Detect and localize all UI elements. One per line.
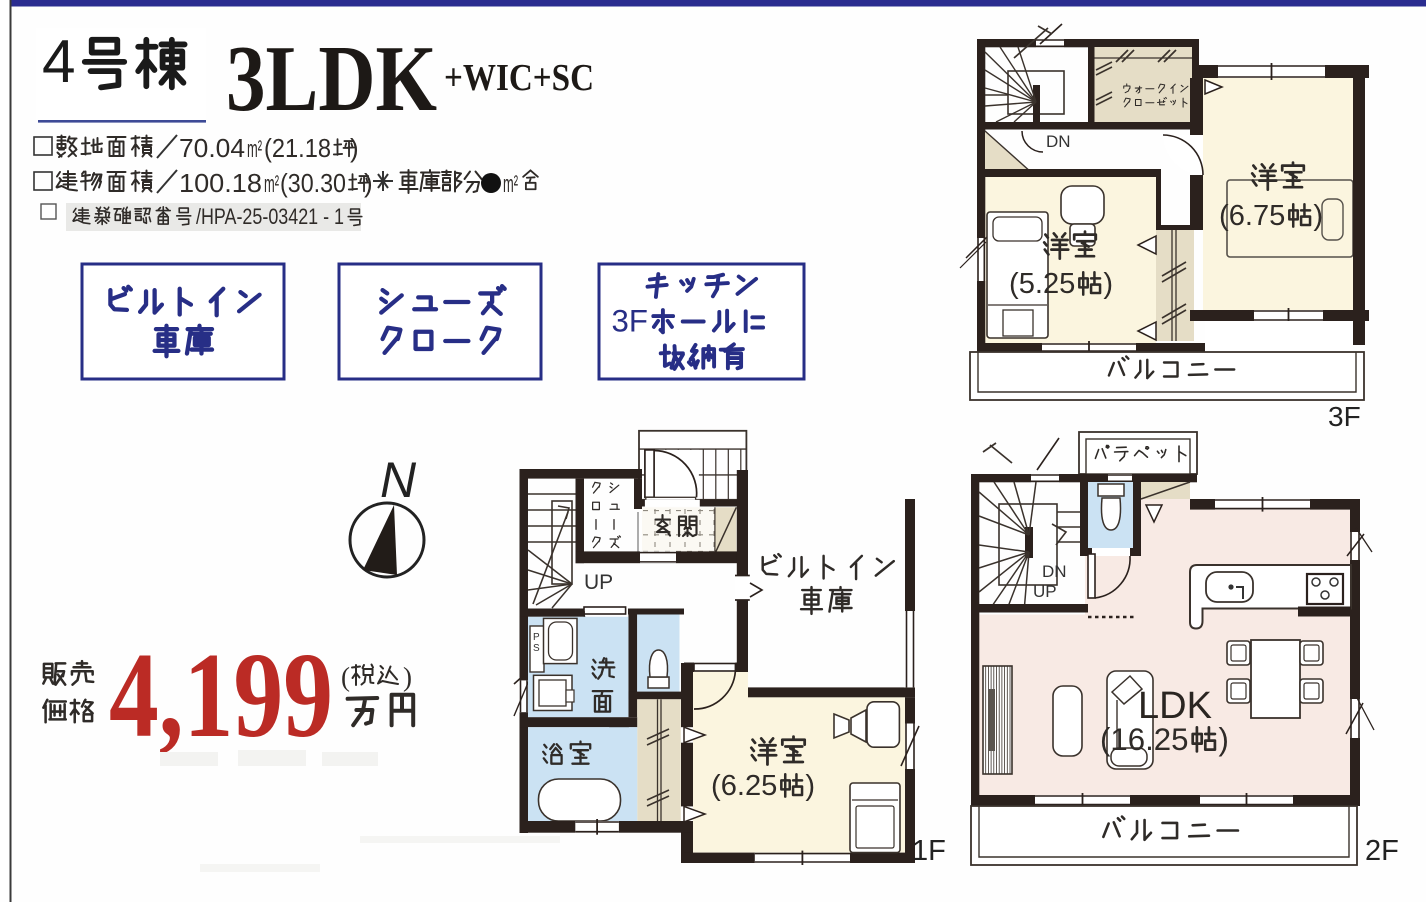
- svg-text:4,199: 4,199: [109, 628, 333, 763]
- svg-text:(30.30: (30.30: [280, 168, 346, 198]
- svg-text:): ): [805, 770, 815, 802]
- svg-text:3F: 3F: [1328, 401, 1361, 432]
- svg-text:100.18: 100.18: [179, 168, 262, 198]
- svg-text:2F: 2F: [1365, 835, 1399, 867]
- svg-text:LDK: LDK: [1138, 685, 1212, 727]
- svg-text:1F: 1F: [912, 835, 946, 867]
- svg-text:N: N: [380, 452, 417, 508]
- svg-text:): ): [403, 662, 412, 692]
- svg-text:4: 4: [42, 27, 76, 95]
- svg-text:): ): [350, 133, 359, 163]
- svg-text:(5.25: (5.25: [1009, 268, 1075, 300]
- svg-text:(16.25: (16.25: [1100, 722, 1188, 757]
- svg-text:UP: UP: [584, 571, 613, 594]
- svg-text:P: P: [533, 632, 540, 643]
- svg-text:m²: m²: [264, 171, 279, 198]
- svg-text:UP: UP: [1033, 582, 1057, 601]
- svg-text:(: (: [341, 662, 350, 692]
- svg-text:(6.25: (6.25: [711, 770, 777, 802]
- svg-text:DN: DN: [1046, 132, 1071, 151]
- svg-text:m²: m²: [503, 171, 518, 198]
- svg-text:+WIC+SC: +WIC+SC: [444, 57, 594, 99]
- svg-text:(21.18: (21.18: [264, 133, 331, 163]
- svg-text:70.04: 70.04: [179, 133, 245, 163]
- svg-text:): ): [1219, 722, 1229, 757]
- svg-text:3LDK: 3LDK: [226, 27, 437, 131]
- svg-text:DN: DN: [1042, 562, 1067, 581]
- svg-text:S: S: [533, 643, 540, 654]
- svg-text:(6.75: (6.75: [1219, 200, 1285, 232]
- svg-text:): ): [364, 168, 373, 198]
- svg-text:): ): [1313, 200, 1323, 232]
- svg-text:): ): [1103, 268, 1113, 300]
- svg-text:3F: 3F: [612, 303, 648, 338]
- svg-text:m²: m²: [247, 136, 262, 163]
- svg-text:/HPA-25-03421 - 1: /HPA-25-03421 - 1: [196, 204, 344, 229]
